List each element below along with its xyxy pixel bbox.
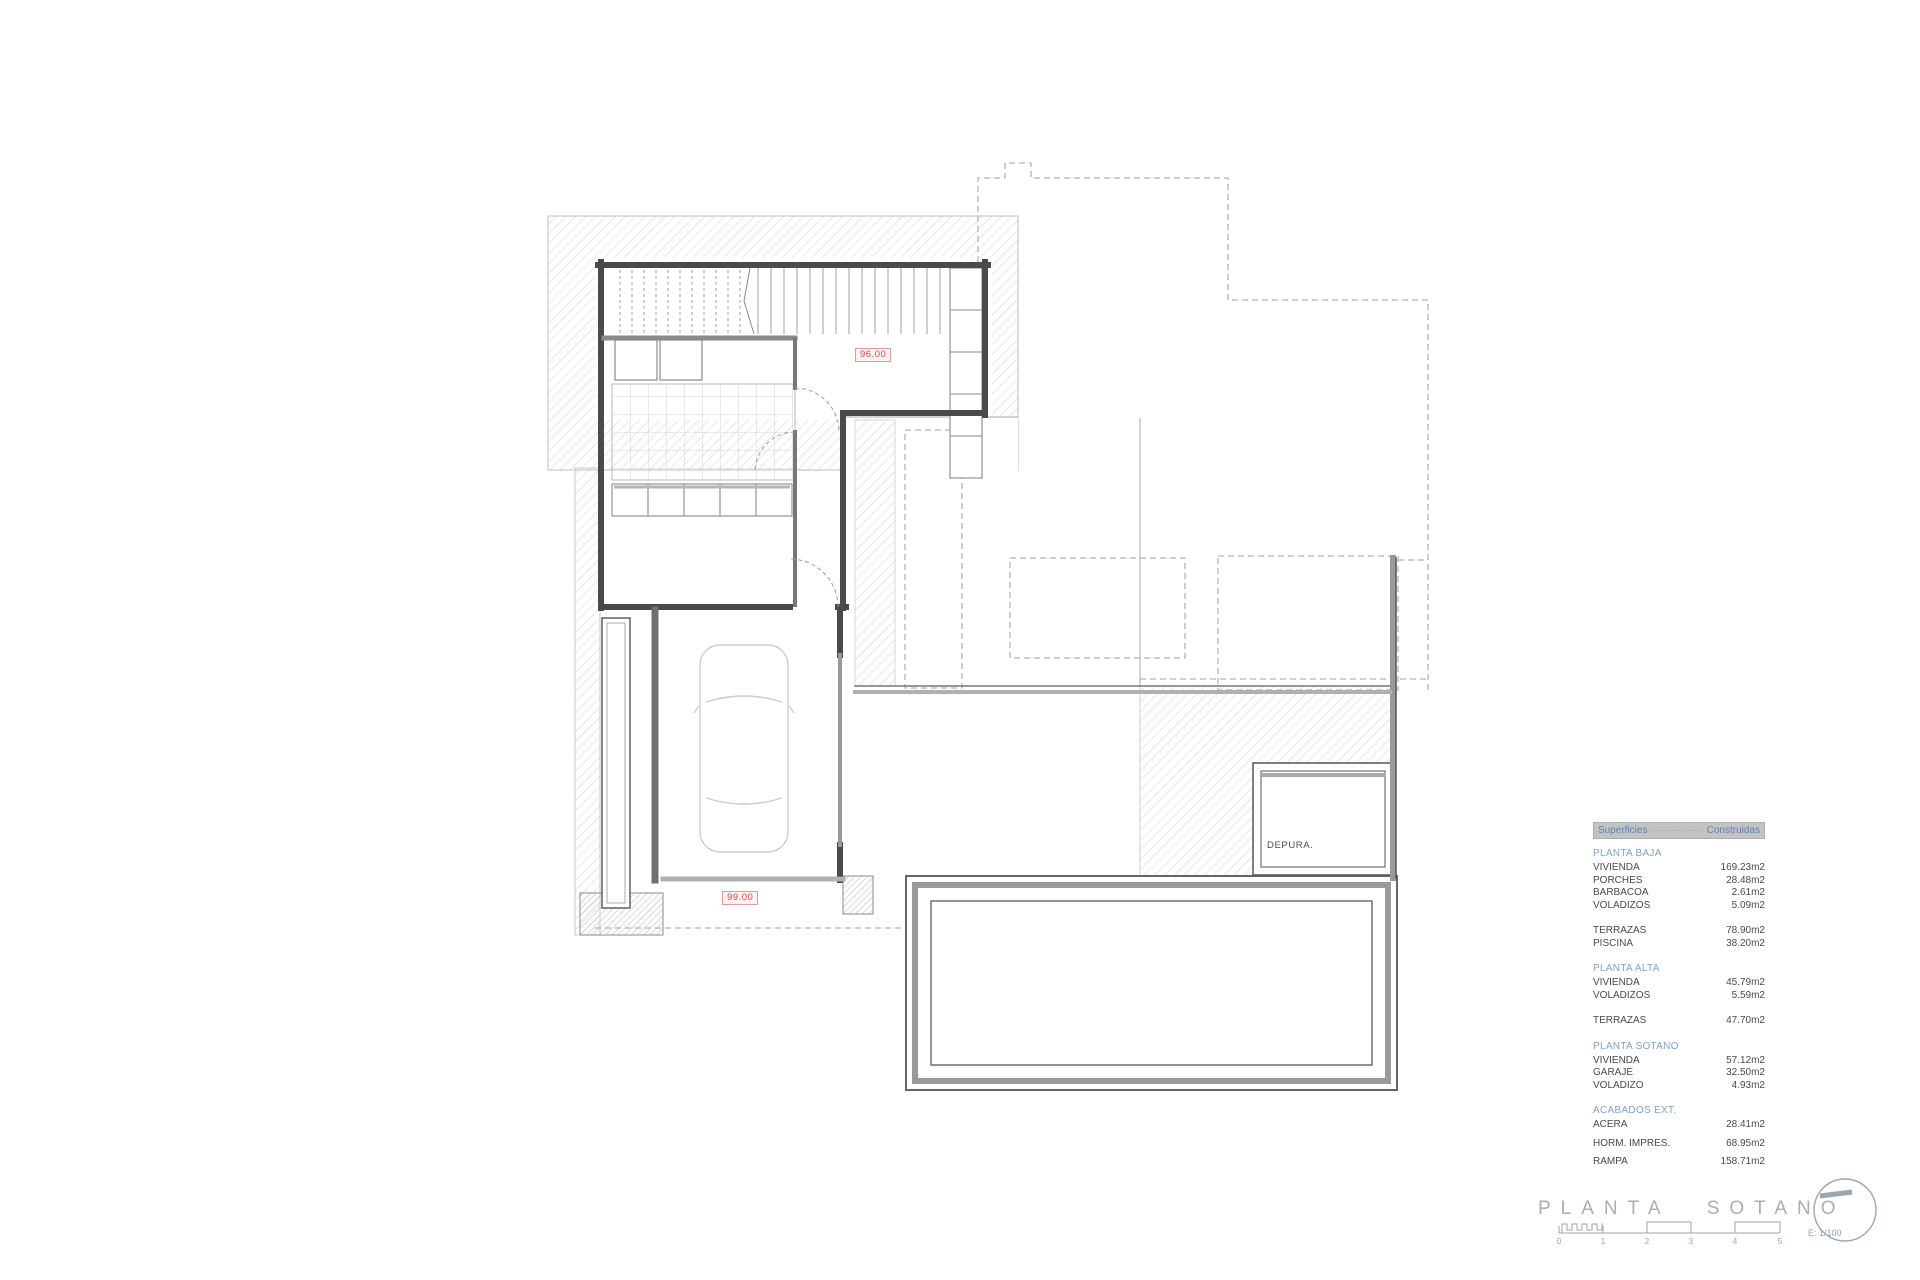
section-planta-sotano: PLANTA SOTANO VIVIENDA57.12m2 GARAJE32.5…	[1593, 1041, 1765, 1093]
area-row: VOLADIZOS5.59m2	[1593, 990, 1765, 1003]
area-label: TERRAZAS	[1593, 1015, 1646, 1028]
area-label: GARAJE	[1593, 1067, 1633, 1080]
scale-tick-label: 0	[1554, 1237, 1564, 1246]
section-heading: PLANTA SOTANO	[1593, 1041, 1765, 1052]
area-label: VIVIENDA	[1593, 1055, 1640, 1068]
area-label: TERRAZAS	[1593, 925, 1646, 938]
area-value: 5.59m2	[1732, 990, 1765, 1003]
area-label: BARBACOA	[1593, 887, 1649, 900]
section-planta-baja: PLANTA BAJA VIVIENDA169.23m2 PORCHES28.4…	[1593, 848, 1765, 912]
area-label: VOLADIZOS	[1593, 990, 1650, 1003]
area-label: VOLADIZO	[1593, 1080, 1644, 1093]
header-col-superficies: Superficies	[1598, 825, 1647, 836]
area-row: PISCINA38.20m2	[1593, 938, 1765, 951]
car-outline	[694, 645, 794, 852]
area-label: VOLADIZOS	[1593, 900, 1650, 913]
area-value: 45.79m2	[1726, 977, 1765, 990]
depuradora-box	[1253, 763, 1393, 875]
section-heading: PLANTA ALTA	[1593, 963, 1765, 974]
shelving-column	[950, 268, 982, 478]
area-row: ACERA28.41m2	[1593, 1119, 1765, 1132]
area-label: HORM. IMPRES.	[1593, 1138, 1670, 1151]
wardrobe	[612, 484, 792, 516]
area-value: 47.70m2	[1726, 1015, 1765, 1028]
area-label: RAMPA	[1593, 1156, 1628, 1169]
areas-table-header: Superficies Construidas	[1593, 822, 1765, 839]
area-value: 4.93m2	[1732, 1080, 1765, 1093]
scale-label: E: 1/100	[1808, 1228, 1842, 1238]
area-value: 158.71m2	[1721, 1156, 1765, 1169]
plan-title: PLANTA SOTANO	[1538, 1198, 1846, 1220]
level-label-upper: 96.00	[855, 348, 891, 362]
area-value: 28.41m2	[1726, 1119, 1765, 1132]
area-value: 68.95m2	[1726, 1138, 1765, 1151]
area-value: 169.23m2	[1721, 862, 1765, 875]
area-value: 78.90m2	[1726, 925, 1765, 938]
area-row: GARAJE32.50m2	[1593, 1067, 1765, 1080]
section-acabados-ext: ACABADOS EXT. ACERA28.41m2 HORM. IMPRES.…	[1593, 1105, 1765, 1169]
section-heading: ACABADOS EXT.	[1593, 1105, 1765, 1116]
scale-tick-label: 3	[1686, 1237, 1696, 1246]
area-value: 5.09m2	[1732, 900, 1765, 913]
lightwell-strip	[602, 618, 630, 908]
area-row: VOLADIZO4.93m2	[1593, 1080, 1765, 1093]
area-label: PISCINA	[1593, 938, 1633, 951]
area-row: RAMPA158.71m2	[1593, 1156, 1765, 1169]
section-terrazas-alta: TERRAZAS47.70m2	[1593, 1015, 1765, 1028]
area-label: VIVIENDA	[1593, 977, 1640, 990]
section-terrazas-piscina: TERRAZAS78.90m2 PISCINA38.20m2	[1593, 925, 1765, 950]
scale-bar	[1559, 1222, 1780, 1233]
area-label: ACERA	[1593, 1119, 1627, 1132]
area-row: PORCHES28.48m2	[1593, 875, 1765, 888]
level-label-lower: 99.00	[722, 891, 758, 905]
area-value: 57.12m2	[1726, 1055, 1765, 1068]
area-value: 28.48m2	[1726, 875, 1765, 888]
section-planta-alta: PLANTA ALTA VIVIENDA45.79m2 VOLADIZOS5.5…	[1593, 963, 1765, 1002]
depuradora-label: DEPURA.	[1267, 840, 1313, 851]
area-label: VIVIENDA	[1593, 862, 1640, 875]
scale-tick-label: 1	[1598, 1237, 1608, 1246]
scale-tick-label: 2	[1642, 1237, 1652, 1246]
area-row: VOLADIZOS5.09m2	[1593, 900, 1765, 913]
scale-tick-label: 4	[1730, 1237, 1740, 1246]
area-row: VIVIENDA45.79m2	[1593, 977, 1765, 990]
area-row: BARBACOA2.61m2	[1593, 887, 1765, 900]
header-col-construidas: Construidas	[1707, 825, 1760, 836]
area-row: HORM. IMPRES.68.95m2	[1593, 1138, 1765, 1151]
area-row: TERRAZAS78.90m2	[1593, 925, 1765, 938]
areas-table: Superficies Construidas PLANTA BAJA VIVI…	[1593, 822, 1765, 1182]
header-divider	[1652, 830, 1701, 831]
section-heading: PLANTA BAJA	[1593, 848, 1765, 859]
drawing-sheet: 96.00 99.00 DEPURA. Superficies Construi…	[0, 0, 1920, 1280]
tiled-floor	[612, 384, 795, 480]
area-row: TERRAZAS47.70m2	[1593, 1015, 1765, 1028]
area-row: VIVIENDA169.23m2	[1593, 862, 1765, 875]
scale-tick-label: 5	[1775, 1237, 1785, 1246]
north-arrow-icon	[1820, 1192, 1852, 1196]
area-label: PORCHES	[1593, 875, 1642, 888]
area-value: 38.20m2	[1726, 938, 1765, 951]
area-value: 32.50m2	[1726, 1067, 1765, 1080]
area-value: 2.61m2	[1732, 887, 1765, 900]
area-row: VIVIENDA57.12m2	[1593, 1055, 1765, 1068]
pool	[906, 876, 1397, 1090]
